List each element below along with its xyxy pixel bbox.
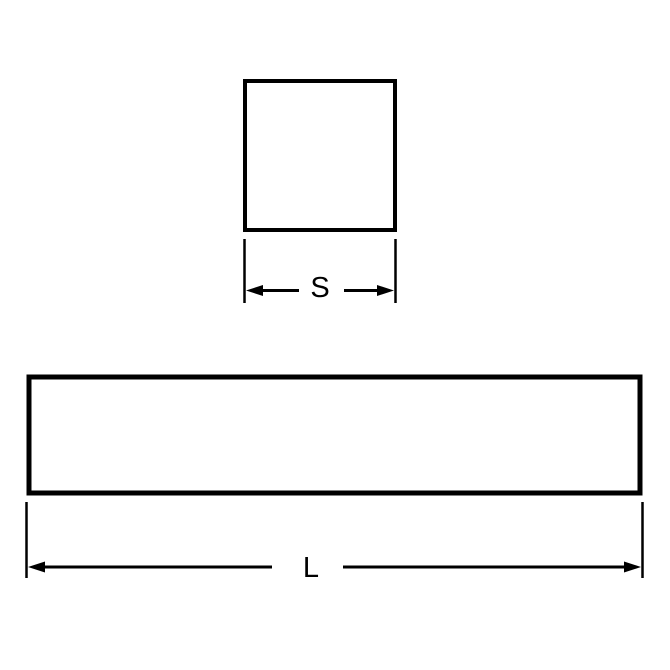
outline-group xyxy=(27,81,643,578)
arrowhead-right-icon xyxy=(377,285,394,296)
technical-drawing-canvas: S L xyxy=(0,0,670,670)
arrowhead-left-icon xyxy=(246,285,263,296)
square-cross-section xyxy=(245,81,395,230)
arrowhead-right-icon xyxy=(624,562,641,573)
fill-group: S L xyxy=(28,272,641,584)
arrowhead-left-icon xyxy=(28,562,45,573)
keystock-dimension-drawing: S L xyxy=(0,0,670,670)
bar-front-view xyxy=(29,377,640,493)
length-dimension-label: L xyxy=(303,552,319,584)
side-dimension-label: S xyxy=(310,272,329,304)
